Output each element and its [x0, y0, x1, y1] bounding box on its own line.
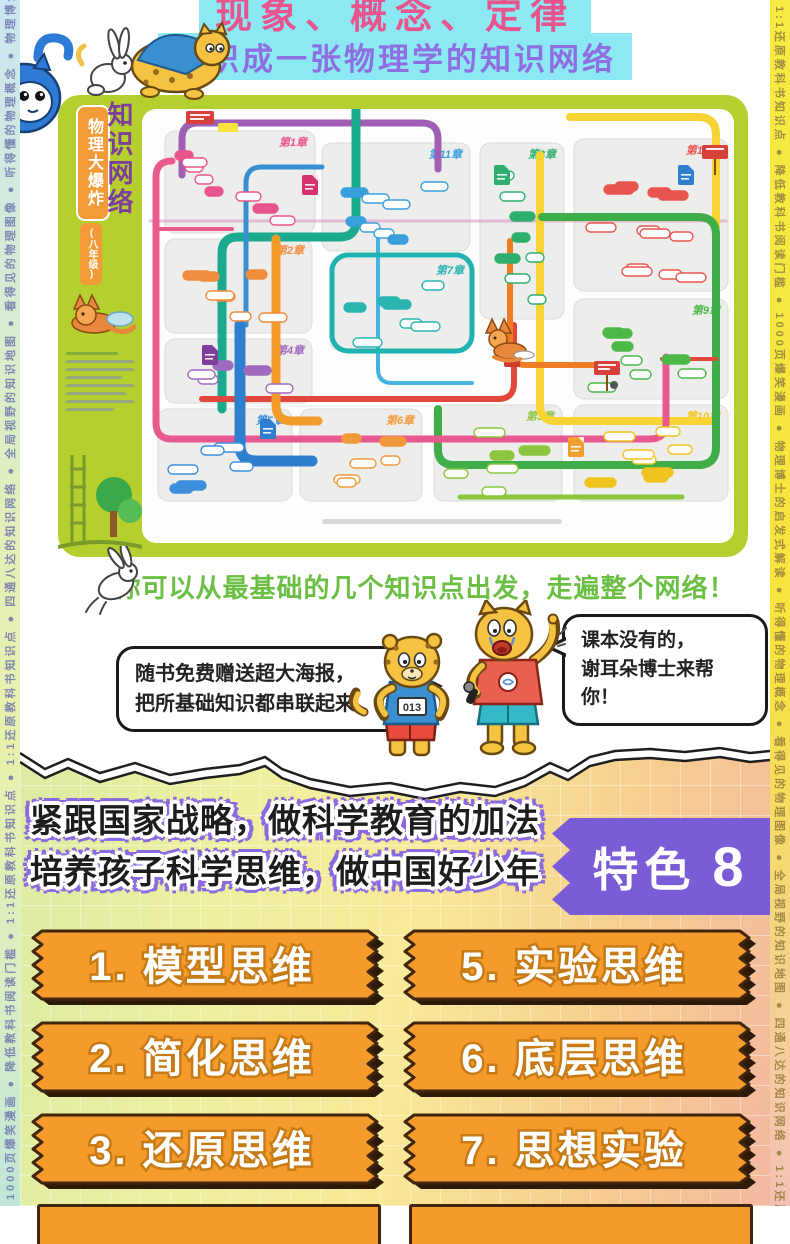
- fox-illustration-small: [60, 291, 138, 337]
- left-rail-text: 1000页爆笑漫画 ● 降低教科书阅读门槛 ● 1:1还原教科书知识点 ● 1:…: [0, 0, 20, 1206]
- chapter-label: 第11章: [429, 148, 464, 161]
- knowledge-node: [622, 267, 652, 276]
- knowledge-node: [383, 200, 410, 209]
- knowledge-node: [382, 300, 411, 309]
- knowledge-network-poster: 物理大爆炸 知识网络 (八年级): [58, 95, 748, 557]
- feature-item-banner-partial: [37, 1204, 381, 1244]
- knowledge-node: [350, 459, 376, 468]
- chapter-doc-icon: [202, 345, 218, 365]
- knowledge-node: [630, 370, 651, 379]
- right-bubble-line1: 课本没有的，: [581, 627, 749, 656]
- trees-illustration: [58, 425, 142, 555]
- knowledge-node: [388, 235, 408, 244]
- cat-mascot: [446, 600, 568, 756]
- leopard-mascot: 013: [346, 632, 450, 758]
- map-caption-placeholder: [322, 519, 562, 524]
- knowledge-node: [487, 464, 518, 473]
- knowledge-node: [246, 270, 267, 279]
- knowledge-node: [623, 450, 654, 459]
- knowledge-node: [270, 216, 295, 225]
- right-rail-text: 1:1还原教科书知识点 ● 降低教科书阅读门槛 ● 1000页爆笑漫画 ● 物理…: [770, 0, 790, 1206]
- leopard-bib-number: 013: [403, 702, 421, 714]
- knowledge-node: [259, 313, 287, 322]
- knowledge-node: [236, 192, 261, 201]
- knowledge-node: [512, 233, 530, 242]
- chapter-label: 第1章: [279, 136, 309, 149]
- feature-heading-line1: 紧跟国家战略，做科学教育的加法: [30, 795, 540, 846]
- knowledge-node: [662, 355, 690, 364]
- knowledge-node: [201, 446, 224, 455]
- knowledge-node: [230, 462, 253, 471]
- chapter-label: 第6章: [386, 414, 416, 427]
- feature-item-label: 6. 底层思维: [461, 1037, 686, 1081]
- knowledge-node: [668, 445, 692, 454]
- poster-title-column: 物理大爆炸 知识网络 (八年级): [58, 95, 142, 557]
- feature-item-banner: 5. 实验思维: [402, 928, 760, 1008]
- knowledge-node: [474, 428, 505, 437]
- knowledge-node: [353, 338, 382, 347]
- knowledge-node: [658, 191, 688, 200]
- knowledge-network-map: 第1章第2章第3章第4章第5章第6章第7章第8章第9章第10章第11章第12章: [142, 109, 734, 543]
- poster-grade-tag: (八年级): [80, 223, 102, 285]
- knowledge-node: [604, 329, 632, 338]
- chapter-doc-icon: [260, 419, 276, 439]
- knowledge-node: [490, 451, 514, 460]
- poster-main-title: 知识网络: [108, 101, 138, 217]
- knowledge-node: [230, 312, 251, 321]
- feature-item-label: 3. 还原思维: [89, 1129, 314, 1173]
- knowledge-node: [604, 432, 635, 441]
- knowledge-node: [266, 384, 293, 393]
- feature-badge-number: 8: [712, 834, 743, 899]
- knowledge-node: [444, 469, 468, 478]
- knowledge-node: [344, 303, 366, 312]
- knowledge-node: [640, 229, 670, 238]
- knowledge-node: [205, 187, 223, 196]
- crouching-leopard-top: [116, 8, 246, 100]
- feature-item-label: 5. 实验思维: [461, 945, 686, 989]
- knowledge-node: [676, 273, 706, 282]
- chapter-doc-icon: [302, 175, 318, 195]
- feature-item-label: 7. 思想实验: [461, 1129, 686, 1173]
- knowledge-node: [510, 212, 535, 221]
- knowledge-node: [495, 254, 520, 263]
- knowledge-node: [411, 322, 440, 331]
- knowledge-node: [642, 468, 673, 477]
- product-detail-page: { "rails": { "left_text": "1000页爆笑漫画 ● 降…: [0, 0, 790, 1206]
- chapter-panel: [480, 143, 564, 319]
- feature-item-label: 1. 模型思维: [89, 945, 314, 989]
- knowledge-node: [342, 434, 361, 443]
- feature-item-grid: 1. 模型思维5. 实验思维2. 简化思维6. 底层思维3. 还原思维7. 思想…: [30, 928, 762, 1244]
- knowledge-node: [183, 271, 211, 280]
- knowledge-node: [528, 295, 546, 304]
- feature-item-banner: 1. 模型思维: [30, 928, 388, 1008]
- feature-badge: 特色 8: [552, 818, 770, 915]
- feature-item-banner: 3. 还原思维: [30, 1112, 388, 1192]
- knowledge-node: [244, 366, 271, 375]
- knowledge-node: [678, 369, 706, 378]
- right-bubble-line2: 谢耳朵博士来帮你！: [581, 656, 749, 713]
- chapter-label: 第7章: [436, 264, 466, 277]
- network-map-panel: 第1章第2章第3章第4章第5章第6章第7章第8章第9章第10章第11章第12章: [142, 109, 734, 543]
- feature-item-banner: 7. 思想实验: [402, 1112, 760, 1192]
- knowledge-node: [500, 192, 525, 201]
- feature-item-label: 2. 简化思维: [89, 1037, 314, 1081]
- chapter-doc-icon: [494, 165, 510, 185]
- knowledge-node: [670, 232, 693, 241]
- feature-badge-label: 特色: [592, 834, 696, 900]
- knowledge-node: [505, 274, 530, 283]
- knowledge-node: [482, 487, 506, 496]
- knowledge-node: [188, 370, 215, 379]
- knowledge-node: [519, 446, 550, 455]
- knowledge-node: [195, 175, 213, 184]
- feature-item-banner-partial: [409, 1204, 753, 1244]
- knowledge-node: [380, 437, 406, 446]
- left-marquee-rail: 1000页爆笑漫画 ● 降低教科书阅读门槛 ● 1:1还原教科书知识点 ● 1:…: [0, 0, 20, 1206]
- knowledge-node: [586, 223, 616, 232]
- feature-heading-line2: 培养孩子科学思维，做中国好少年: [30, 846, 540, 897]
- knowledge-node: [656, 427, 680, 436]
- feature-section: 紧跟国家战略，做科学教育的加法 培养孩子科学思维，做中国好少年 特色 8 1. …: [20, 735, 770, 1206]
- knowledge-node: [337, 478, 356, 487]
- jumping-rabbit: [82, 546, 146, 616]
- chapter-doc-icon: [568, 437, 584, 457]
- knowledge-node: [422, 281, 444, 290]
- knowledge-node: [612, 342, 633, 351]
- knowledge-node: [604, 185, 634, 194]
- knowledge-node: [206, 291, 234, 300]
- feature-heading: 紧跟国家战略，做科学教育的加法 培养孩子科学思维，做中国好少年: [30, 795, 540, 897]
- feature-item-banner: 2. 简化思维: [30, 1020, 388, 1100]
- knowledge-node: [381, 456, 400, 465]
- knowledge-node: [421, 182, 448, 191]
- chapter-doc-icon: [678, 165, 694, 185]
- knowledge-node: [168, 465, 198, 474]
- knowledge-node: [621, 356, 642, 365]
- knowledge-node: [526, 253, 544, 262]
- poster-intro-text-block: [58, 347, 142, 411]
- knowledge-node: [170, 484, 193, 493]
- knowledge-node: [253, 204, 278, 213]
- feature-item-banner: 6. 底层思维: [402, 1020, 760, 1100]
- right-marquee-rail: 1:1还原教科书知识点 ● 降低教科书阅读门槛 ● 1000页爆笑漫画 ● 物理…: [770, 0, 790, 1206]
- right-speech-bubble: 课本没有的， 谢耳朵博士来帮你！: [562, 614, 768, 726]
- knowledge-node: [585, 478, 616, 487]
- knowledge-node: [182, 158, 207, 167]
